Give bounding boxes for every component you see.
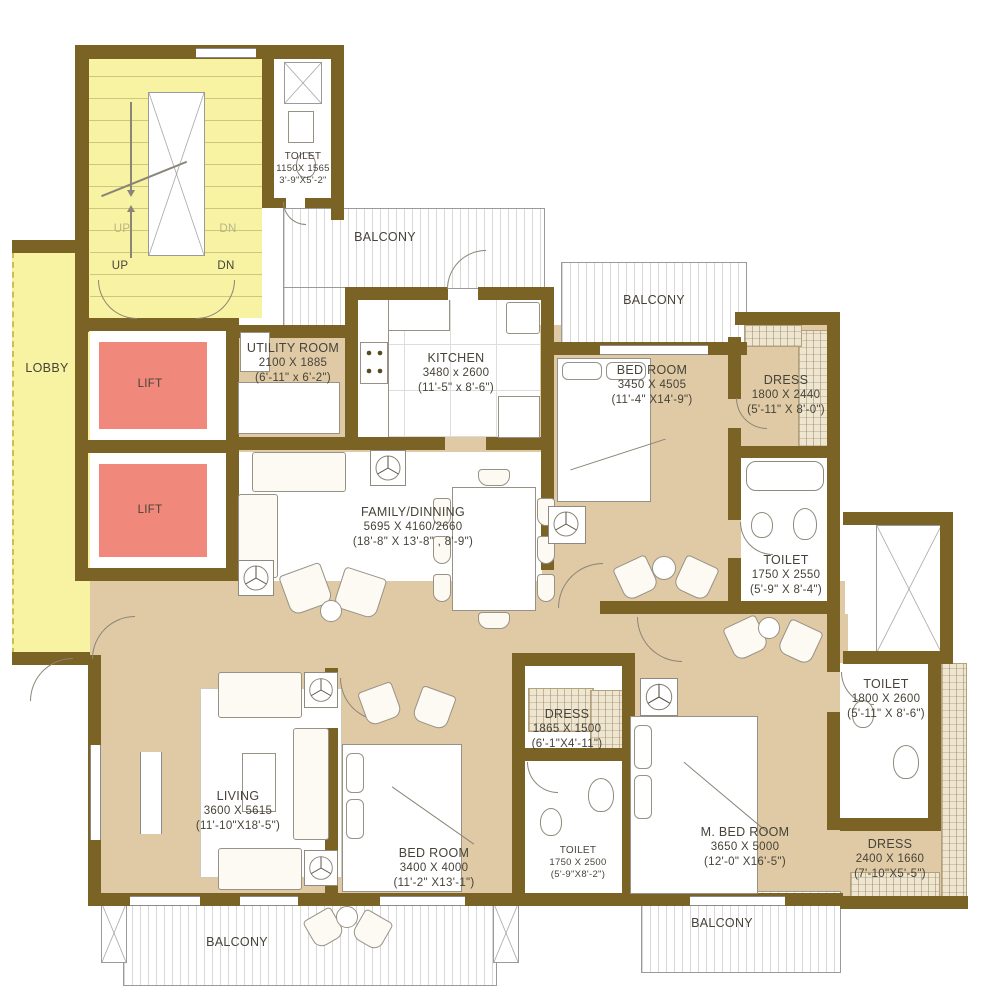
wall (486, 437, 554, 450)
stair-dn-inner-label: DN (219, 222, 236, 237)
blanket-line (684, 762, 769, 833)
room-label-balcony-right: BALCONY (623, 292, 685, 308)
ceiling-fan-icon (370, 450, 406, 486)
wall (728, 458, 741, 520)
balcony-top (283, 208, 545, 289)
wall (262, 59, 274, 205)
room-label-living: LIVING 3600 X 5615 (11'-10"X18'-5") (196, 788, 280, 834)
wall (345, 437, 445, 450)
wall (512, 653, 635, 666)
room-label-lobby: LOBBY (25, 360, 68, 377)
wall (75, 318, 238, 331)
wall (75, 45, 89, 332)
wall (512, 748, 525, 905)
ceiling-fan-icon (548, 506, 586, 544)
room-label-kitchen: KITCHEN 3480 x 2600 (11'-5" x 8'-6") (418, 350, 494, 396)
ceiling-fan-icon (640, 678, 678, 716)
wardrobe-dress-top (744, 325, 802, 347)
room-label-lift2: LIFT (138, 503, 163, 518)
shaft-right-duct (876, 525, 942, 653)
wall (827, 614, 840, 672)
room-label-toilet-bottom: TOILET 1750 X 2500 (5'-9"X8'-2") (549, 844, 606, 882)
room-label-balcony-br: BALCONY (691, 915, 753, 931)
wall (840, 818, 941, 831)
window (690, 896, 785, 906)
wall (827, 712, 840, 830)
wall (305, 198, 344, 208)
ceiling-fan-icon (238, 560, 274, 596)
dining-chair (478, 469, 510, 486)
pillow (634, 725, 652, 769)
wall (940, 512, 953, 664)
wall (75, 440, 238, 453)
sofa (218, 672, 302, 718)
wall (512, 666, 525, 748)
sofa (218, 848, 302, 890)
stair-arrow-up (127, 205, 135, 212)
wall (12, 240, 78, 253)
room-label-lift1: LIFT (138, 377, 163, 392)
balcony-bl-rail-right (493, 903, 519, 963)
wall (928, 663, 941, 823)
balcony-top-ext (283, 287, 347, 329)
ceiling-fan-icon (304, 850, 338, 886)
fridge (498, 396, 540, 438)
balcony-table (336, 906, 358, 928)
wall (331, 45, 344, 220)
sink (751, 512, 773, 538)
room-label-balcony-top: BALCONY (354, 229, 416, 245)
room-label-toilet-right: TOILET 1800 X 2600 (5'-11" X 8'-6") (847, 676, 925, 722)
wall (232, 437, 345, 450)
kitchen-counter-top (388, 300, 450, 331)
room-label-utility: UTILITY ROOM 2100 X 1885 (6'-11" x 6'-2"… (247, 340, 339, 386)
room-label-toilet-mid: TOILET 1750 X 2550 (5'-9" X 8'-4") (750, 552, 822, 598)
window (380, 896, 465, 906)
wall (88, 893, 338, 906)
wall (843, 512, 953, 525)
bathtub (746, 461, 824, 491)
stair-arrow-line (130, 102, 132, 190)
room-label-toilet-top: TOILET 1150X 1565 3'-9"X5'-2" (276, 150, 330, 188)
balcony-bl-rail-left (101, 903, 127, 963)
wall (541, 287, 554, 450)
dining-chair (537, 574, 555, 602)
wardrobe-right-strip (941, 663, 967, 908)
stair-up-inner-label: UP (114, 222, 131, 237)
wall (728, 337, 741, 399)
window (240, 896, 298, 906)
wall (75, 568, 238, 581)
sofa (252, 452, 346, 492)
wall (352, 287, 448, 300)
side-table (652, 556, 676, 580)
wall (345, 287, 358, 450)
kitchen-sink (506, 302, 540, 334)
wall (840, 896, 968, 909)
sofa (293, 728, 329, 840)
pillow (346, 753, 364, 793)
room-label-mbedroom: M. BED ROOM 3650 X 5000 (12'-0" X16'-5") (701, 824, 790, 870)
toilet-wc (793, 508, 817, 540)
wall (728, 558, 741, 601)
wall (735, 312, 840, 325)
window (130, 896, 200, 906)
room-label-dress-bottom: DRESS 2400 X 1660 (7'-10"X5'-5") (854, 836, 926, 882)
window (600, 345, 708, 355)
ceiling-fan-icon (304, 672, 338, 708)
pillow (346, 799, 364, 839)
stair-dn-label: DN (217, 259, 234, 274)
room-label-balcony-bl: BALCONY (206, 934, 268, 950)
side-table (758, 617, 780, 639)
coffee-table (320, 600, 342, 622)
room-label-dress-mid: DRESS 1865 X 1500 (6'-1"X4'-11") (532, 706, 603, 752)
stair-arrow-down (127, 190, 135, 197)
wall (75, 318, 88, 581)
toilet-wc (588, 778, 614, 812)
toilet-wc (893, 745, 919, 779)
window (196, 48, 256, 58)
window (90, 745, 101, 840)
wall (512, 893, 635, 906)
room-label-family: FAMILY/DINNING 5695 X 4160/2660 (18'-8" … (353, 504, 473, 550)
wall (827, 312, 840, 614)
blanket-line (392, 786, 474, 844)
pillow (562, 362, 602, 380)
balcony-bottom-left (123, 900, 497, 986)
sink (540, 808, 562, 836)
dining-chair (478, 612, 510, 629)
shaft-top-duct (284, 62, 322, 104)
stair-up-label: UP (112, 259, 129, 274)
wall (733, 446, 827, 458)
wall (600, 601, 830, 614)
room-label-dress-top: DRESS 1800 X 2440 (5'-11" X 8'-0") (747, 372, 825, 418)
room-label-bedroom-bottom: BED ROOM 3400 X 4000 (11'-2" X13'-1") (393, 845, 474, 891)
sink (288, 111, 314, 143)
floor-plan: UP DN UP DN LOBBY BALCONY BALCONY BALCON… (0, 0, 1000, 1000)
utility-counter (238, 382, 340, 434)
tv-unit (140, 752, 162, 834)
stove (360, 342, 388, 384)
dining-chair (433, 574, 451, 602)
room-label-bedroom-top: BED ROOM 3450 X 4505 (11'-4" X14'-9") (611, 362, 692, 408)
pillow (634, 775, 652, 819)
